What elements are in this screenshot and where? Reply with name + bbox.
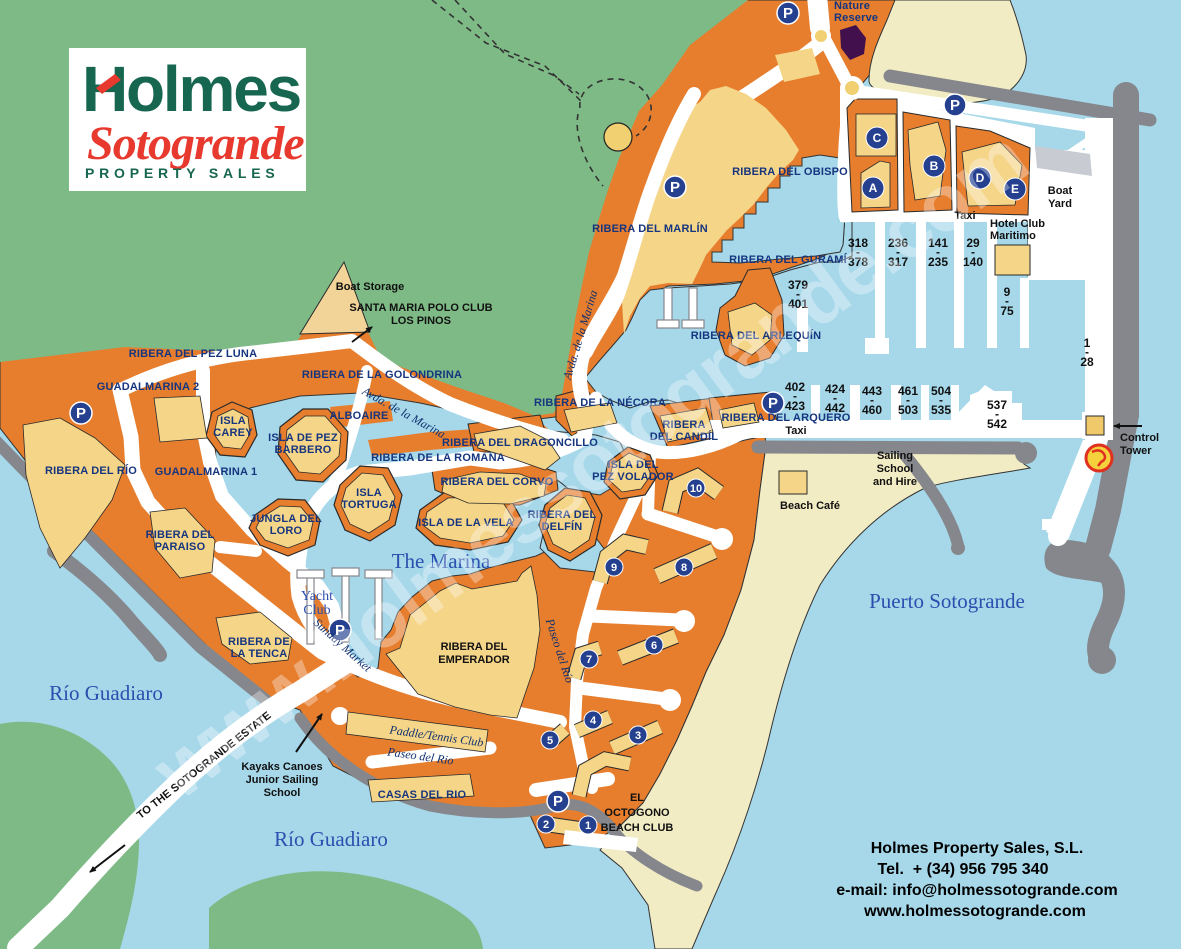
svg-text:Tower: Tower — [1120, 445, 1152, 457]
svg-text:EMPERADOR: EMPERADOR — [438, 654, 510, 666]
svg-text:5: 5 — [547, 735, 553, 747]
svg-text:BARBERO: BARBERO — [274, 444, 331, 456]
svg-text:Taxi: Taxi — [785, 425, 806, 437]
svg-text:P: P — [670, 179, 680, 196]
svg-text:RIBERA DEL: RIBERA DEL — [146, 529, 215, 541]
svg-text:RIBERA DE LA GOLONDRINA: RIBERA DE LA GOLONDRINA — [302, 369, 462, 381]
svg-text:EL: EL — [630, 792, 644, 804]
svg-text:Sailing: Sailing — [877, 450, 913, 462]
svg-text:2: 2 — [543, 819, 549, 831]
svg-text:P: P — [76, 405, 86, 422]
svg-text:GUADALMARINA 1: GUADALMARINA 1 — [155, 466, 258, 478]
svg-text:7: 7 — [586, 654, 592, 666]
svg-text:10: 10 — [690, 483, 702, 495]
svg-text:ISLA: ISLA — [220, 415, 246, 427]
svg-text:Beach Café: Beach Café — [780, 500, 840, 512]
svg-text:LORO: LORO — [270, 525, 303, 537]
svg-text:PARAISO: PARAISO — [155, 541, 206, 553]
svg-text:ISLA: ISLA — [356, 487, 382, 499]
svg-text:P: P — [553, 793, 563, 810]
svg-text:SANTA MARIA POLO CLUB: SANTA MARIA POLO CLUB — [349, 302, 492, 314]
svg-text:140: 140 — [963, 255, 983, 269]
svg-text:Maritimo: Maritimo — [990, 230, 1036, 242]
svg-text:442: 442 — [825, 401, 845, 415]
svg-text:Holmes Property Sales, S.L.: Holmes Property Sales, S.L. — [871, 840, 1084, 857]
svg-text:CASAS DEL RIO: CASAS DEL RIO — [378, 789, 467, 801]
svg-text:3: 3 — [635, 730, 641, 742]
svg-text:1: 1 — [585, 820, 591, 832]
svg-text:School: School — [877, 463, 914, 475]
svg-text:LOS PINOS: LOS PINOS — [391, 315, 451, 327]
svg-text:TORTUGA: TORTUGA — [341, 499, 397, 511]
svg-text:542: 542 — [987, 417, 1007, 431]
svg-text:535: 535 — [931, 403, 951, 417]
svg-text:Tel. + (34) 956 795 340: Tel. + (34) 956 795 340 — [878, 861, 1049, 878]
svg-text:Reserve: Reserve — [834, 12, 878, 24]
svg-text:PROPERTY SALES: PROPERTY SALES — [85, 165, 280, 181]
svg-text:ALBOAIRE: ALBOAIRE — [329, 410, 388, 422]
svg-text:Río Guadiaro: Río Guadiaro — [49, 681, 163, 705]
svg-text:School: School — [264, 787, 301, 799]
svg-text:C: C — [873, 131, 882, 145]
svg-text:CAREY: CAREY — [213, 427, 253, 439]
svg-text:Nature: Nature — [834, 0, 870, 12]
svg-text:GUADALMARINA 2: GUADALMARINA 2 — [97, 381, 200, 393]
svg-text:RIBERA DEL: RIBERA DEL — [441, 641, 508, 653]
svg-text:e-mail: info@holmessotogrande.: e-mail: info@holmessotogrande.com — [836, 882, 1117, 899]
svg-text:OCTOGONO: OCTOGONO — [604, 807, 670, 819]
svg-text:Holmes: Holmes — [82, 53, 300, 125]
svg-text:ISLA DE PEZ: ISLA DE PEZ — [268, 432, 338, 444]
svg-text:503: 503 — [898, 403, 918, 417]
svg-text:RIBERA DEL PEZ LUNA: RIBERA DEL PEZ LUNA — [129, 348, 257, 360]
svg-text:4: 4 — [590, 715, 597, 727]
svg-text:P: P — [950, 97, 960, 114]
svg-text:P: P — [783, 5, 793, 22]
svg-text:RIBERA DE LA ROMANA: RIBERA DE LA ROMANA — [371, 452, 505, 464]
svg-text:460: 460 — [862, 403, 882, 417]
svg-text:Boat Storage: Boat Storage — [336, 281, 404, 293]
svg-text:Hotel Club: Hotel Club — [990, 218, 1045, 230]
svg-text:Boat: Boat — [1048, 185, 1073, 197]
svg-text:Río Guadiaro: Río Guadiaro — [274, 827, 388, 851]
svg-text:JUNGLA DEL: JUNGLA DEL — [250, 513, 322, 525]
svg-text:and Hire: and Hire — [873, 476, 917, 488]
svg-text:Junior Sailing: Junior Sailing — [246, 774, 319, 786]
svg-text:423: 423 — [785, 399, 805, 413]
svg-text:Control: Control — [1120, 432, 1159, 444]
svg-text:Puerto Sotogrande: Puerto Sotogrande — [869, 589, 1025, 613]
svg-text:75: 75 — [1000, 304, 1014, 318]
svg-text:RIBERA DEL RÍO: RIBERA DEL RÍO — [45, 464, 137, 477]
svg-text:www.holmessotogrande.com: www.holmessotogrande.com — [863, 903, 1086, 920]
svg-text:28: 28 — [1080, 355, 1094, 369]
svg-text:P: P — [768, 395, 778, 412]
svg-text:A: A — [869, 181, 878, 195]
svg-text:BEACH CLUB: BEACH CLUB — [601, 822, 674, 834]
svg-text:6: 6 — [651, 640, 657, 652]
svg-text:Yard: Yard — [1048, 198, 1072, 210]
svg-text:9: 9 — [611, 562, 617, 574]
svg-text:RIBERA DEL OBISPO: RIBERA DEL OBISPO — [732, 166, 848, 178]
svg-text:8: 8 — [681, 562, 687, 574]
svg-text:RIBERA DEL MARLÍN: RIBERA DEL MARLÍN — [592, 222, 708, 235]
svg-text:Sotogrande: Sotogrande — [87, 117, 304, 170]
